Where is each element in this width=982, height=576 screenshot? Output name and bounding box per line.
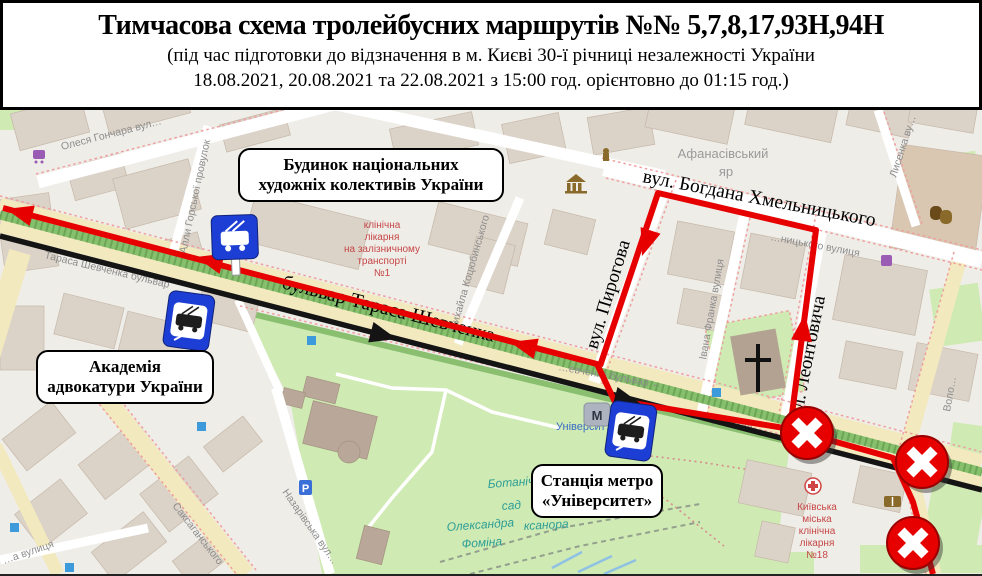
page-title: Тимчасова схема тролейбусних маршрутів №… [3,10,979,42]
svg-text:клінічна: клінічна [799,526,836,537]
svg-text:міська: міська [802,514,832,525]
trolleybus-stop-sign-2 [162,290,215,352]
svg-text:P: P [302,483,309,495]
trolleybus-scheme-page: P Олеся Гончара вул… Алли Горської прову… [0,0,982,576]
callout-academy: Академія адвокатури України [36,350,214,404]
metro-entrance-icon: М [584,403,610,426]
monument-icon [603,148,609,161]
callout-arts-building: Будинок національних художніх колективів… [238,148,504,202]
page-subtitle-1: (під час підготовки до відзначення в м. … [3,45,979,67]
library-book-icon [884,496,901,507]
page-subtitle-2: 18.08.2021, 20.08.2021 та 22.08.2021 з 1… [3,70,979,92]
svg-text:лікарня: лікарня [365,232,400,243]
svg-text:клінічна: клінічна [364,220,401,231]
svg-text:Київська: Київська [797,502,837,513]
svg-text:М: М [592,408,603,423]
scheme-header: Тимчасова схема тролейбусних маршрутів №… [0,0,982,110]
svg-text:ксанора: ксанора [523,517,569,533]
svg-text:сад: сад [501,498,522,513]
shop-icon [881,255,892,266]
svg-text:на залізничному: на залізничному [344,244,420,255]
area-label-yar: яр [719,164,733,179]
svg-text:№18: №18 [806,550,828,561]
callout-metro-station: Станція метро «Університет» [531,464,663,518]
svg-text:Фоміна: Фоміна [461,534,503,551]
svg-text:транспорті: транспорті [357,256,406,267]
svg-text:№1: №1 [374,268,391,279]
svg-text:лікарня: лікарня [800,538,835,549]
parking-icon: P [299,480,312,495]
area-label-afanasivskyi: Афанасівський [678,146,769,161]
hospital-cross-icon [805,478,821,494]
trolleybus-stop-sign-3 [604,400,657,462]
